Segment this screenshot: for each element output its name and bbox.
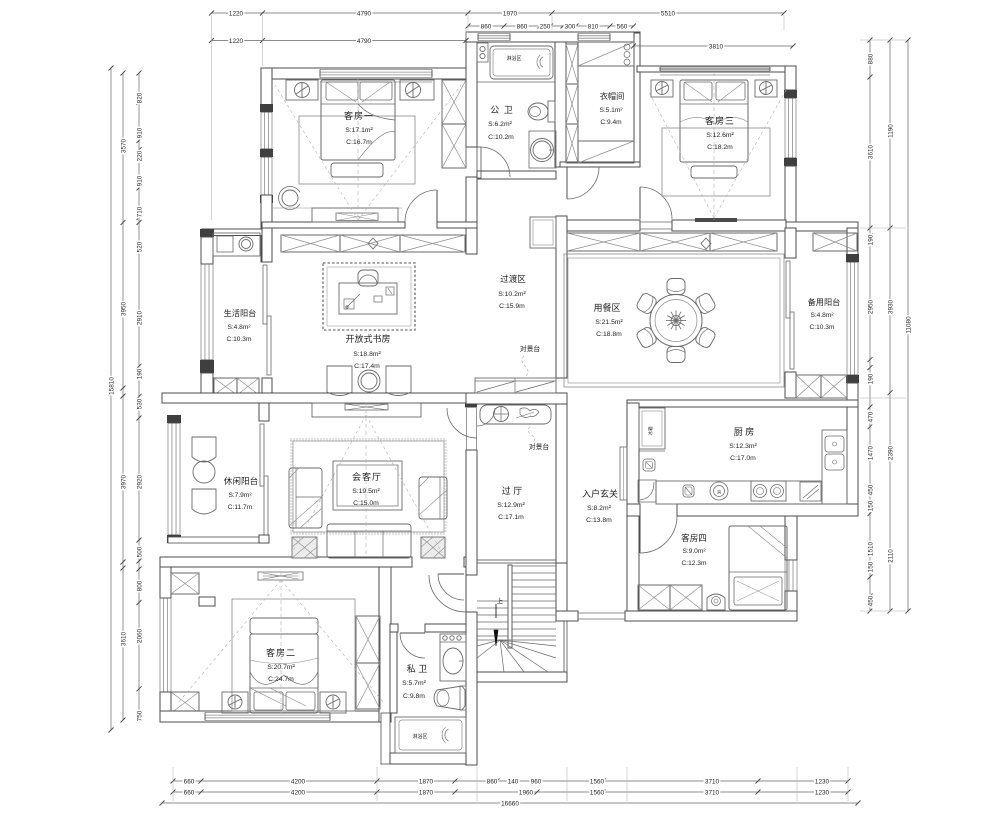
svg-text:190: 190 (136, 368, 143, 379)
svg-text:冰箱: 冰箱 (647, 426, 654, 435)
svg-text:500: 500 (136, 546, 143, 557)
svg-text:S:6.2m²: S:6.2m² (488, 121, 513, 128)
svg-text:3570: 3570 (120, 138, 127, 153)
svg-text:1220: 1220 (229, 38, 244, 45)
svg-text:公 卫: 公 卫 (490, 105, 514, 115)
svg-text:3810: 3810 (709, 43, 724, 50)
svg-text:710: 710 (136, 206, 143, 217)
svg-text:3930: 3930 (887, 299, 894, 314)
svg-text:4200: 4200 (291, 789, 306, 796)
svg-text:C:17.1m: C:17.1m (498, 514, 524, 521)
svg-text:4200: 4200 (291, 778, 306, 785)
svg-text:2950: 2950 (867, 299, 874, 314)
svg-text:C:15.0m: C:15.0m (353, 500, 379, 507)
svg-text:C:9.8m: C:9.8m (403, 693, 425, 700)
svg-text:C:10.3m: C:10.3m (810, 324, 835, 331)
svg-text:880: 880 (867, 53, 874, 64)
svg-text:1870: 1870 (419, 778, 434, 785)
svg-text:2060: 2060 (136, 628, 143, 643)
svg-text:生活阳台: 生活阳台 (224, 308, 257, 318)
svg-text:1190: 1190 (887, 124, 894, 138)
svg-text:860: 860 (487, 778, 498, 785)
svg-text:11080: 11080 (905, 316, 912, 334)
svg-text:C:18.2m: C:18.2m (707, 144, 733, 151)
svg-text:1510: 1510 (867, 541, 874, 556)
svg-text:910: 910 (136, 127, 143, 138)
svg-text:C:18.8m: C:18.8m (596, 331, 622, 338)
svg-text:S:10.2m²: S:10.2m² (498, 291, 526, 298)
svg-text:对景台: 对景台 (529, 442, 550, 451)
svg-text:800: 800 (136, 580, 143, 591)
svg-text:S:5.1m²: S:5.1m² (599, 107, 623, 114)
svg-text:450: 450 (867, 595, 874, 606)
svg-text:910: 910 (136, 175, 143, 186)
svg-text:810: 810 (588, 23, 599, 30)
svg-text:消: 消 (717, 489, 721, 495)
svg-text:140: 140 (508, 778, 519, 785)
svg-text:客房四: 客房四 (681, 532, 707, 543)
svg-text:190: 190 (867, 234, 874, 245)
svg-text:150: 150 (867, 561, 874, 572)
svg-text:16660: 16660 (501, 800, 519, 807)
svg-text:淋浴区: 淋浴区 (412, 733, 427, 740)
svg-text:2920: 2920 (136, 474, 143, 489)
svg-text:衣帽间: 衣帽间 (600, 91, 625, 101)
svg-text:S:21.5m²: S:21.5m² (595, 319, 623, 326)
svg-text:休闲阳台: 休闲阳台 (224, 475, 258, 486)
svg-text:3710: 3710 (705, 789, 720, 796)
svg-text:2910: 2910 (136, 310, 143, 325)
svg-text:4790: 4790 (357, 38, 372, 45)
svg-text:备用阳台: 备用阳台 (808, 297, 841, 307)
svg-text:S:5.7m²: S:5.7m² (402, 680, 427, 687)
svg-text:2390: 2390 (887, 445, 894, 460)
svg-text:会客厅: 会客厅 (352, 471, 382, 482)
svg-text:C:12.3m: C:12.3m (682, 560, 707, 567)
svg-text:300: 300 (565, 23, 576, 30)
svg-text:1230: 1230 (815, 778, 830, 785)
svg-text:660: 660 (184, 778, 195, 785)
svg-text:C:13.8m: C:13.8m (586, 517, 612, 524)
svg-text:1560: 1560 (590, 778, 605, 785)
svg-text:开放式书房: 开放式书房 (345, 333, 390, 344)
svg-text:3950: 3950 (120, 301, 127, 316)
svg-text:S:20.7m²: S:20.7m² (267, 664, 295, 671)
svg-text:3710: 3710 (705, 778, 720, 785)
svg-text:过渡区: 过渡区 (500, 273, 526, 284)
svg-text:对景台: 对景台 (520, 344, 541, 353)
svg-text:S:17.1m²: S:17.1m² (345, 127, 373, 134)
svg-text:C:17.4m: C:17.4m (354, 363, 380, 370)
svg-text:C:15.9m: C:15.9m (499, 303, 525, 310)
svg-text:220: 220 (136, 150, 143, 161)
svg-text:S:8.2m²: S:8.2m² (587, 505, 612, 512)
svg-text:530: 530 (136, 398, 143, 409)
svg-text:15810: 15810 (108, 377, 115, 395)
svg-text:S:7.9m²: S:7.9m² (228, 492, 252, 499)
svg-text:3610: 3610 (120, 631, 127, 646)
svg-text:1970: 1970 (503, 10, 518, 17)
svg-text:3970: 3970 (120, 474, 127, 489)
svg-text:S:12.9m²: S:12.9m² (497, 502, 525, 509)
svg-text:860: 860 (517, 23, 528, 30)
svg-text:S:4.8m²: S:4.8m² (227, 324, 251, 331)
svg-text:客房一: 客房一 (344, 110, 374, 121)
svg-text:4790: 4790 (357, 10, 372, 17)
svg-text:用餐区: 用餐区 (593, 302, 620, 313)
svg-text:250: 250 (540, 23, 551, 30)
svg-text:1870: 1870 (419, 789, 434, 796)
svg-text:960: 960 (531, 778, 542, 785)
svg-text:1560: 1560 (590, 789, 605, 796)
svg-text:1230: 1230 (815, 789, 830, 796)
svg-text:C:17.0m: C:17.0m (730, 455, 756, 462)
svg-text:660: 660 (184, 789, 195, 796)
svg-text:上: 上 (497, 596, 504, 605)
svg-text:C:24.7m: C:24.7m (268, 676, 294, 683)
svg-text:520: 520 (136, 241, 143, 252)
svg-text:入户玄关: 入户玄关 (582, 488, 618, 499)
svg-text:C:11.7m: C:11.7m (228, 504, 253, 511)
svg-text:S:12.3m²: S:12.3m² (729, 443, 757, 450)
svg-text:S:18.8m²: S:18.8m² (353, 351, 381, 358)
svg-text:客房三: 客房三 (705, 115, 735, 126)
svg-text:1470: 1470 (867, 445, 874, 460)
svg-text:S:9.0m²: S:9.0m² (682, 548, 706, 555)
svg-text:5510: 5510 (661, 10, 676, 17)
svg-text:3610: 3610 (867, 144, 874, 159)
svg-text:820: 820 (136, 92, 143, 103)
svg-text:私 卫: 私 卫 (407, 664, 428, 674)
svg-text:过 厅: 过 厅 (502, 485, 523, 496)
svg-text:2110: 2110 (887, 549, 894, 563)
svg-text:S:4.8m²: S:4.8m² (810, 312, 834, 319)
svg-text:C:16.7m: C:16.7m (346, 139, 372, 146)
svg-text:淋浴区: 淋浴区 (506, 55, 521, 62)
svg-text:450: 450 (867, 484, 874, 495)
svg-text:厨 房: 厨 房 (734, 426, 755, 437)
svg-text:190: 190 (867, 373, 874, 384)
svg-text:1960: 1960 (519, 789, 534, 796)
svg-text:C:10.3m: C:10.3m (227, 336, 252, 343)
svg-text:560: 560 (617, 23, 628, 30)
svg-text:150: 150 (867, 500, 874, 511)
svg-text:470: 470 (867, 411, 874, 422)
svg-text:750: 750 (136, 710, 143, 721)
svg-text:860: 860 (481, 23, 492, 30)
svg-text:S:19.5m²: S:19.5m² (352, 488, 380, 495)
svg-text:C:9.4m: C:9.4m (600, 119, 622, 126)
svg-text:客房二: 客房二 (266, 647, 296, 658)
svg-text:C:10.2m: C:10.2m (488, 134, 514, 141)
svg-text:1220: 1220 (229, 10, 244, 17)
svg-text:S:12.6m²: S:12.6m² (706, 132, 734, 139)
